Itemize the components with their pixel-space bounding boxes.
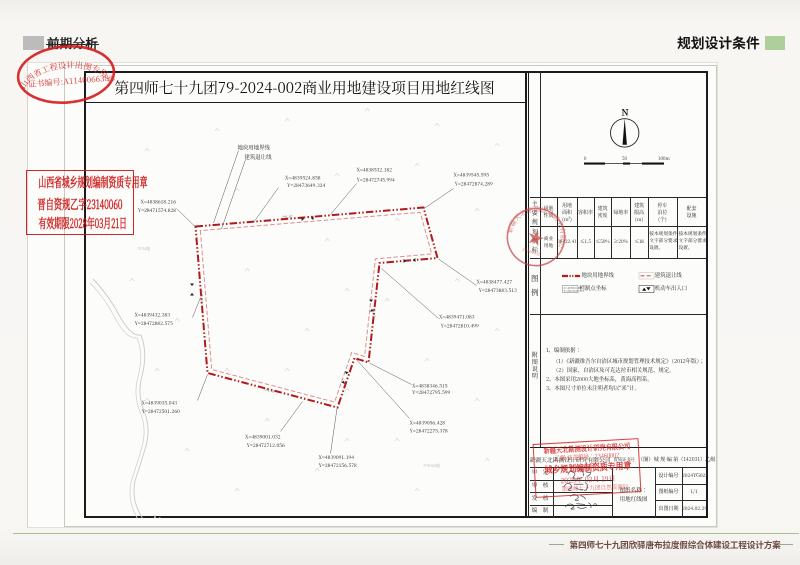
svg-text:23460002: 23460002 <box>521 247 541 259</box>
svg-text:Y=28472874.289: Y=28472874.289 <box>454 180 492 187</box>
svg-text:N: N <box>622 107 629 119</box>
svg-text:建筑退让线: 建筑退让线 <box>244 153 272 161</box>
svg-text:Y=28473883.513: Y=28473883.513 <box>478 287 516 294</box>
svg-text:X=4839471.083: X=4839471.083 <box>439 313 475 320</box>
svg-text:X=4839056.428: X=4839056.428 <box>409 419 445 426</box>
svg-text:0: 0 <box>584 156 587 162</box>
svg-text:Y=28471574.828: Y=28471574.828 <box>137 207 175 214</box>
svg-text:Y=28472156.578: Y=28472156.578 <box>318 462 356 469</box>
svg-text:Y=28472712.056: Y=28472712.056 <box>246 442 284 449</box>
svg-text:Y=28472275.378: Y=28472275.378 <box>409 427 447 434</box>
svg-text:X=4839432.383: X=4839432.383 <box>134 311 170 318</box>
svg-text:X=4838477.427: X=4838477.427 <box>476 278 512 285</box>
svg-text:Y=28472745.994: Y=28472745.994 <box>356 176 394 183</box>
svg-text:100m: 100m <box>658 156 670 162</box>
svg-text:地块用地界线: 地块用地界线 <box>237 143 270 151</box>
svg-text:99.92: 99.92 <box>370 307 376 317</box>
svg-text:791046地: 791046地 <box>423 462 440 469</box>
svg-text:Y=28473649.324: Y=28473649.324 <box>287 182 325 189</box>
svg-text:X=4839001.032: X=4839001.032 <box>245 433 281 440</box>
svg-text:Y=28472795.599: Y=28472795.599 <box>412 389 450 396</box>
svg-text:X=4838532.182: X=4838532.182 <box>356 166 392 173</box>
svg-text:新疆天北勘测设计研究有限公司: 新疆天北勘测设计研究有限公司 <box>504 205 568 252</box>
svg-text:50: 50 <box>622 156 627 162</box>
svg-text:X=4839091.194: X=4839091.194 <box>318 454 354 461</box>
svg-text:Y=28472501.260: Y=28472501.260 <box>141 408 179 415</box>
svg-text:Y=28472882.575: Y=28472882.575 <box>134 320 172 327</box>
svg-text:291.07: 291.07 <box>281 214 292 220</box>
svg-text:7F34地: 7F34地 <box>137 245 150 252</box>
svg-text:X=4839545.595: X=4839545.595 <box>453 171 489 178</box>
svg-text:Y=28472810.499: Y=28472810.499 <box>440 322 478 329</box>
svg-text:147.66: 147.66 <box>198 290 204 301</box>
svg-text:236.46: 236.46 <box>262 387 274 395</box>
svg-text:X=4838618.216: X=4838618.216 <box>140 198 176 205</box>
svg-text:X=4839035.043: X=4839035.043 <box>141 399 177 406</box>
svg-text:X=4839524.858: X=4839524.858 <box>285 174 321 181</box>
